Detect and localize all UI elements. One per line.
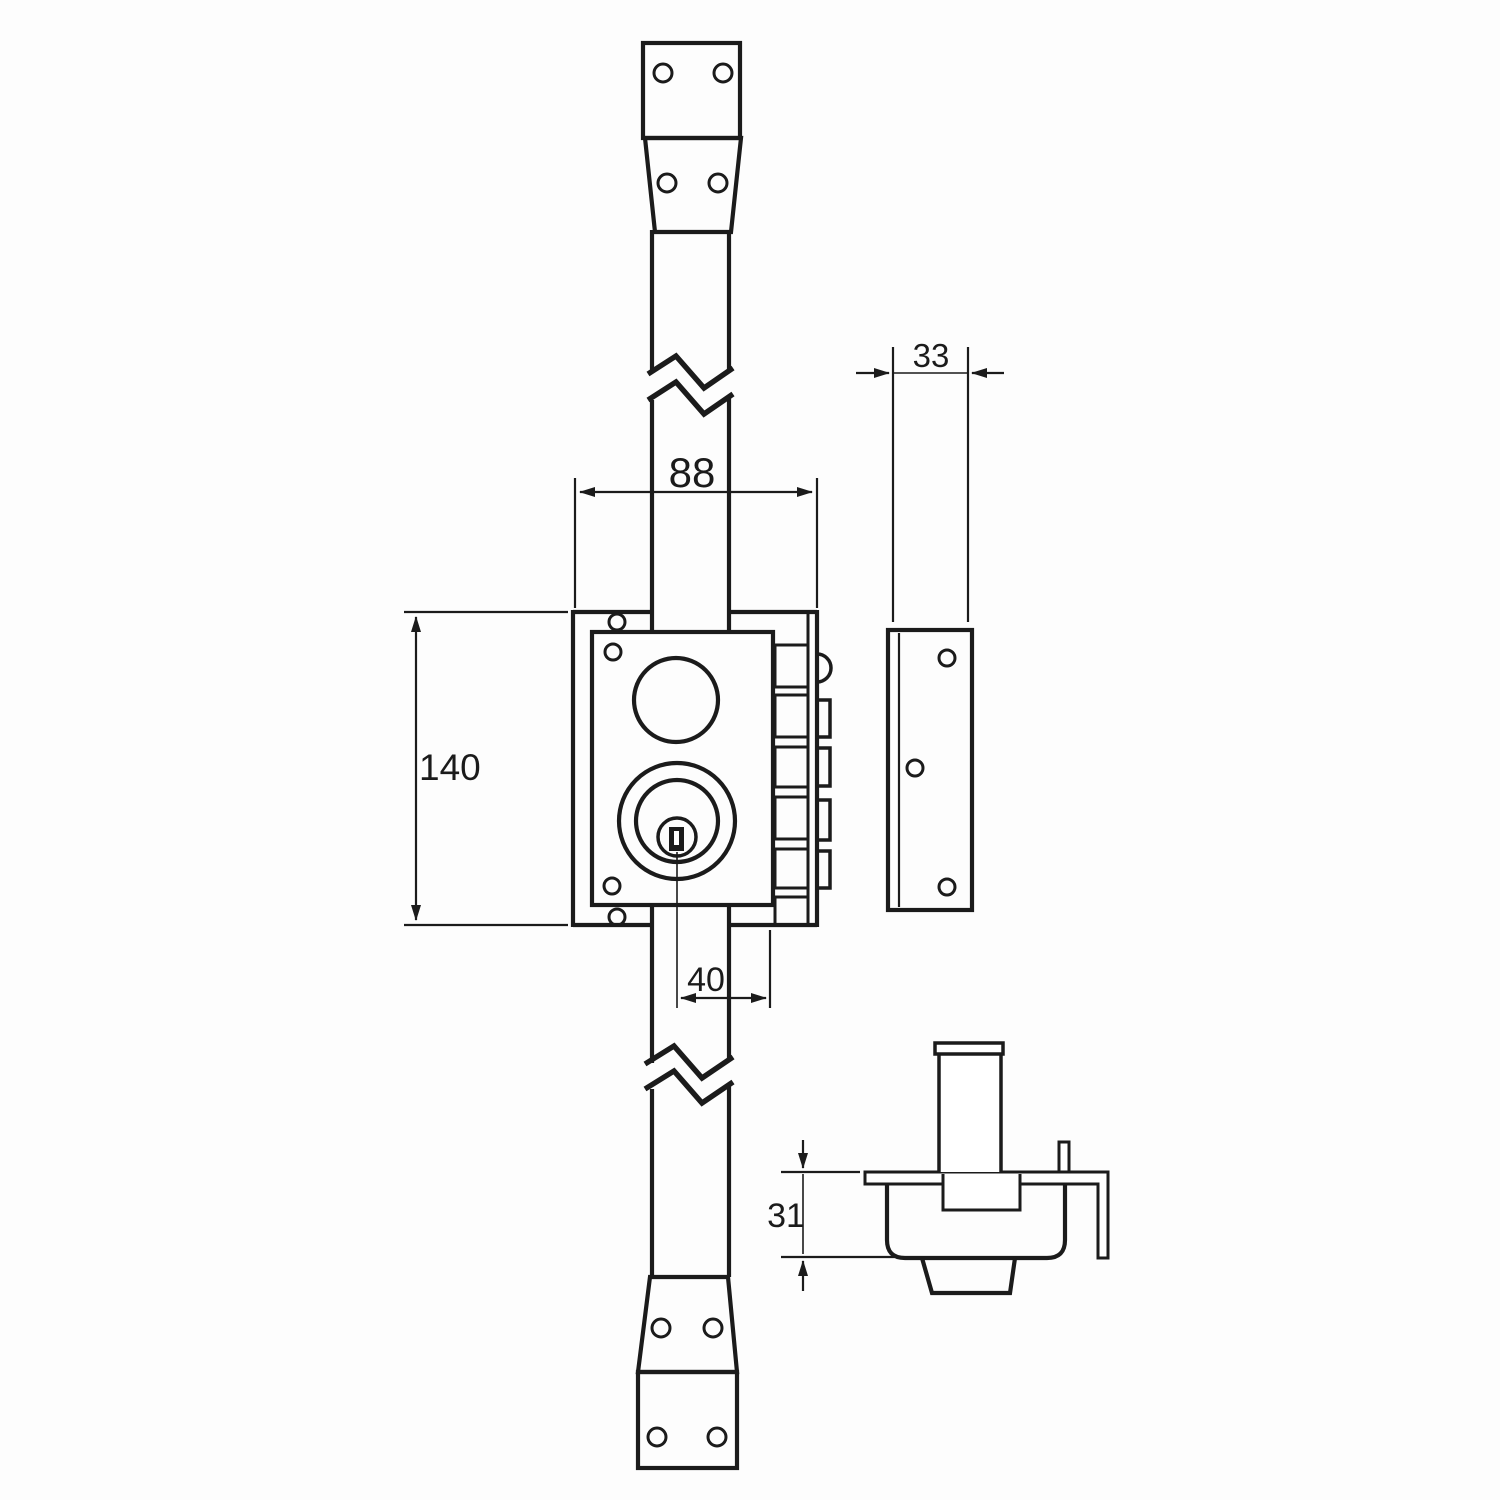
dimension-label: 31: [767, 1197, 805, 1235]
lock-technical-drawing: 88 140 40 33: [0, 0, 1500, 1500]
stop-pin: [1059, 1142, 1069, 1172]
barrel-cap: [935, 1043, 1003, 1054]
drawing-background: [0, 0, 1500, 1500]
dimension-label: 33: [913, 337, 950, 374]
dimension-label: 40: [687, 961, 725, 999]
keyway-slot: [674, 831, 679, 845]
dimension-label: 140: [419, 747, 481, 788]
cylinder-barrel: [939, 1053, 1001, 1172]
dimension-label: 88: [669, 449, 716, 496]
cylinder-plug-section: [943, 1174, 1020, 1210]
